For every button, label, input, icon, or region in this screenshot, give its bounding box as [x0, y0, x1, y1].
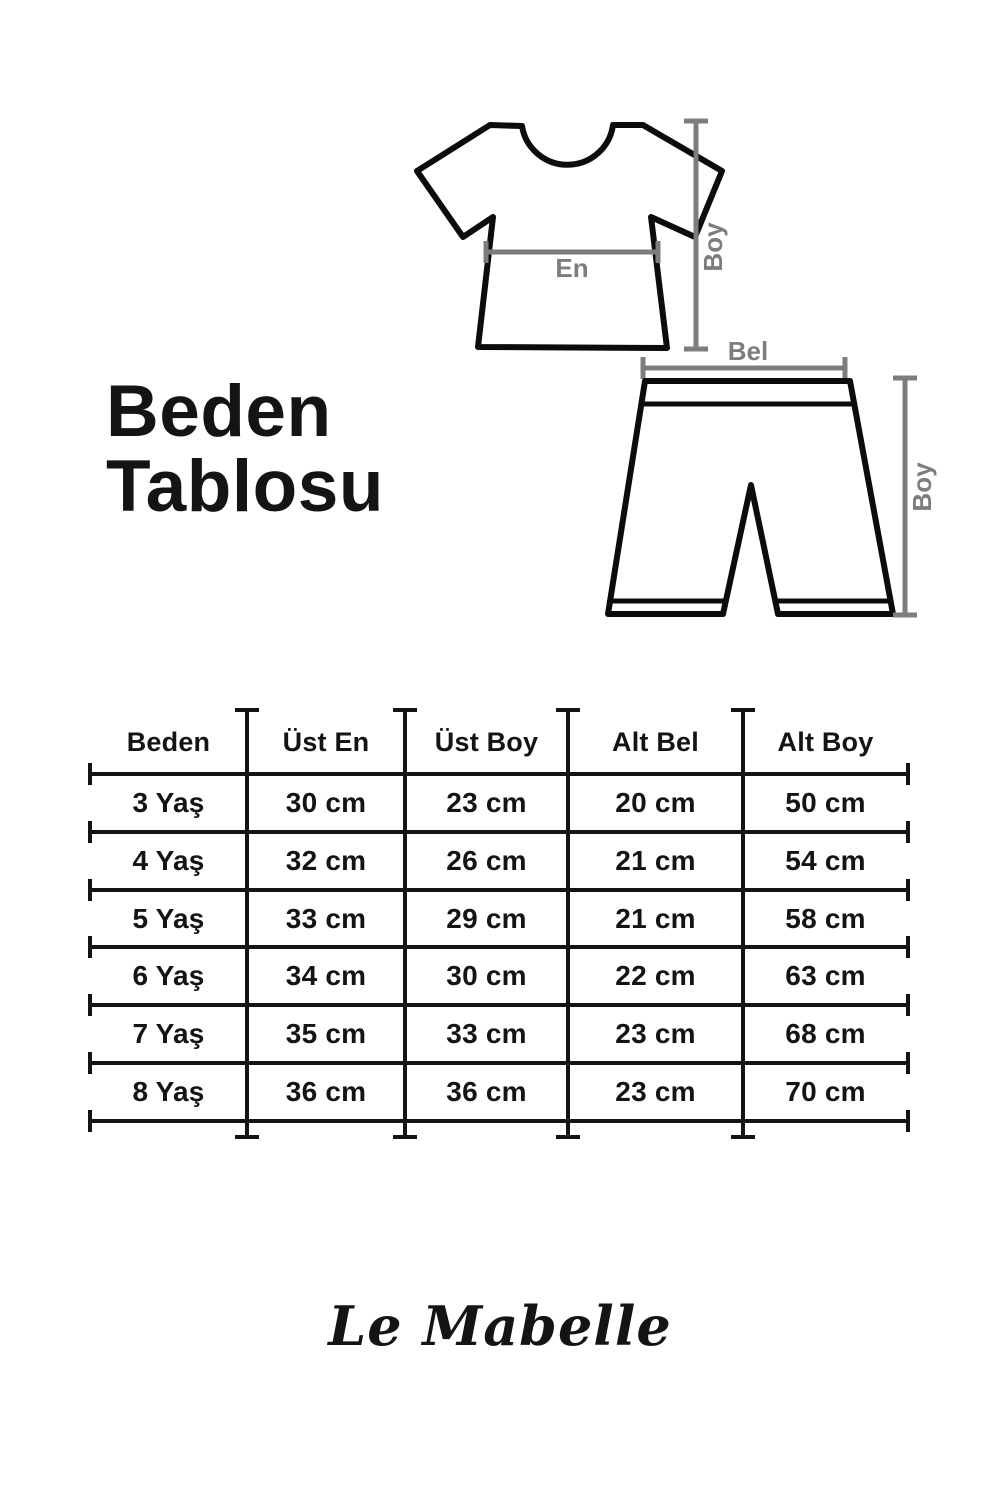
cell-ust-en: 35 cm	[247, 1005, 405, 1063]
cell-alt-boy: 58 cm	[743, 890, 908, 947]
cell-alt-bel: 22 cm	[568, 947, 743, 1005]
table-horizontal-line	[90, 1061, 908, 1065]
page-title-line1: Beden	[106, 371, 332, 452]
header-cell-ust-en: Üst En	[247, 710, 405, 774]
cell-alt-boy: 54 cm	[743, 832, 908, 890]
shorts-height-measure: Boy	[893, 378, 937, 615]
cell-alt-bel: 20 cm	[568, 774, 743, 832]
brand-logo: Le Mabelle	[0, 1294, 1000, 1358]
table-vertical-line	[403, 710, 407, 1137]
garment-diagrams: En Boy Bel Boy	[0, 0, 1000, 660]
cell-alt-bel: 23 cm	[568, 1005, 743, 1063]
cell-ust-en: 30 cm	[247, 774, 405, 832]
table-horizontal-line	[90, 1119, 908, 1123]
cell-ust-boy: 29 cm	[405, 890, 568, 947]
size-chart-sheet: En Boy Bel Boy Beden T	[0, 0, 1000, 1500]
cell-ust-boy: 30 cm	[405, 947, 568, 1005]
shorts-height-label: Boy	[907, 462, 937, 512]
cell-size: 5 Yaş	[90, 890, 247, 947]
cell-size: 7 Yaş	[90, 1005, 247, 1063]
header-cell-ust-boy: Üst Boy	[405, 710, 568, 774]
tshirt-width-label: En	[555, 253, 588, 283]
cell-ust-en: 36 cm	[247, 1063, 405, 1121]
cell-ust-boy: 23 cm	[405, 774, 568, 832]
header-cell-alt-bel: Alt Bel	[568, 710, 743, 774]
cell-ust-boy: 36 cm	[405, 1063, 568, 1121]
table-vertical-line	[245, 710, 249, 1137]
cell-ust-en: 34 cm	[247, 947, 405, 1005]
table-horizontal-line	[90, 772, 908, 776]
cell-alt-boy: 50 cm	[743, 774, 908, 832]
cell-ust-en: 32 cm	[247, 832, 405, 890]
cell-size: 3 Yaş	[90, 774, 247, 832]
cell-ust-en: 33 cm	[247, 890, 405, 947]
cell-alt-bel: 23 cm	[568, 1063, 743, 1121]
table-horizontal-line	[90, 945, 908, 949]
page-title: Beden Tablosu	[106, 374, 384, 524]
cell-alt-bel: 21 cm	[568, 832, 743, 890]
cell-alt-bel: 21 cm	[568, 890, 743, 947]
shorts-waist-label: Bel	[728, 336, 768, 366]
page-title-line2: Tablosu	[106, 446, 384, 527]
header-cell-alt-boy: Alt Boy	[743, 710, 908, 774]
cell-ust-boy: 33 cm	[405, 1005, 568, 1063]
size-table: Beden Üst En Üst Boy Alt Bel Alt Boy 3 Y…	[90, 710, 908, 1121]
cell-ust-boy: 26 cm	[405, 832, 568, 890]
header-cell-beden: Beden	[90, 710, 247, 774]
table-horizontal-line	[90, 888, 908, 892]
cell-alt-boy: 70 cm	[743, 1063, 908, 1121]
tshirt-height-label: Boy	[698, 222, 728, 272]
table-vertical-line	[741, 710, 745, 1137]
cell-alt-boy: 68 cm	[743, 1005, 908, 1063]
table-horizontal-line	[90, 830, 908, 834]
table-horizontal-line	[90, 1003, 908, 1007]
tshirt-outline	[417, 125, 722, 348]
cell-size: 8 Yaş	[90, 1063, 247, 1121]
shorts-outline	[608, 381, 893, 614]
table-vertical-line	[566, 710, 570, 1137]
shorts-waist-measure: Bel	[643, 336, 845, 379]
cell-size: 4 Yaş	[90, 832, 247, 890]
cell-size: 6 Yaş	[90, 947, 247, 1005]
cell-alt-boy: 63 cm	[743, 947, 908, 1005]
